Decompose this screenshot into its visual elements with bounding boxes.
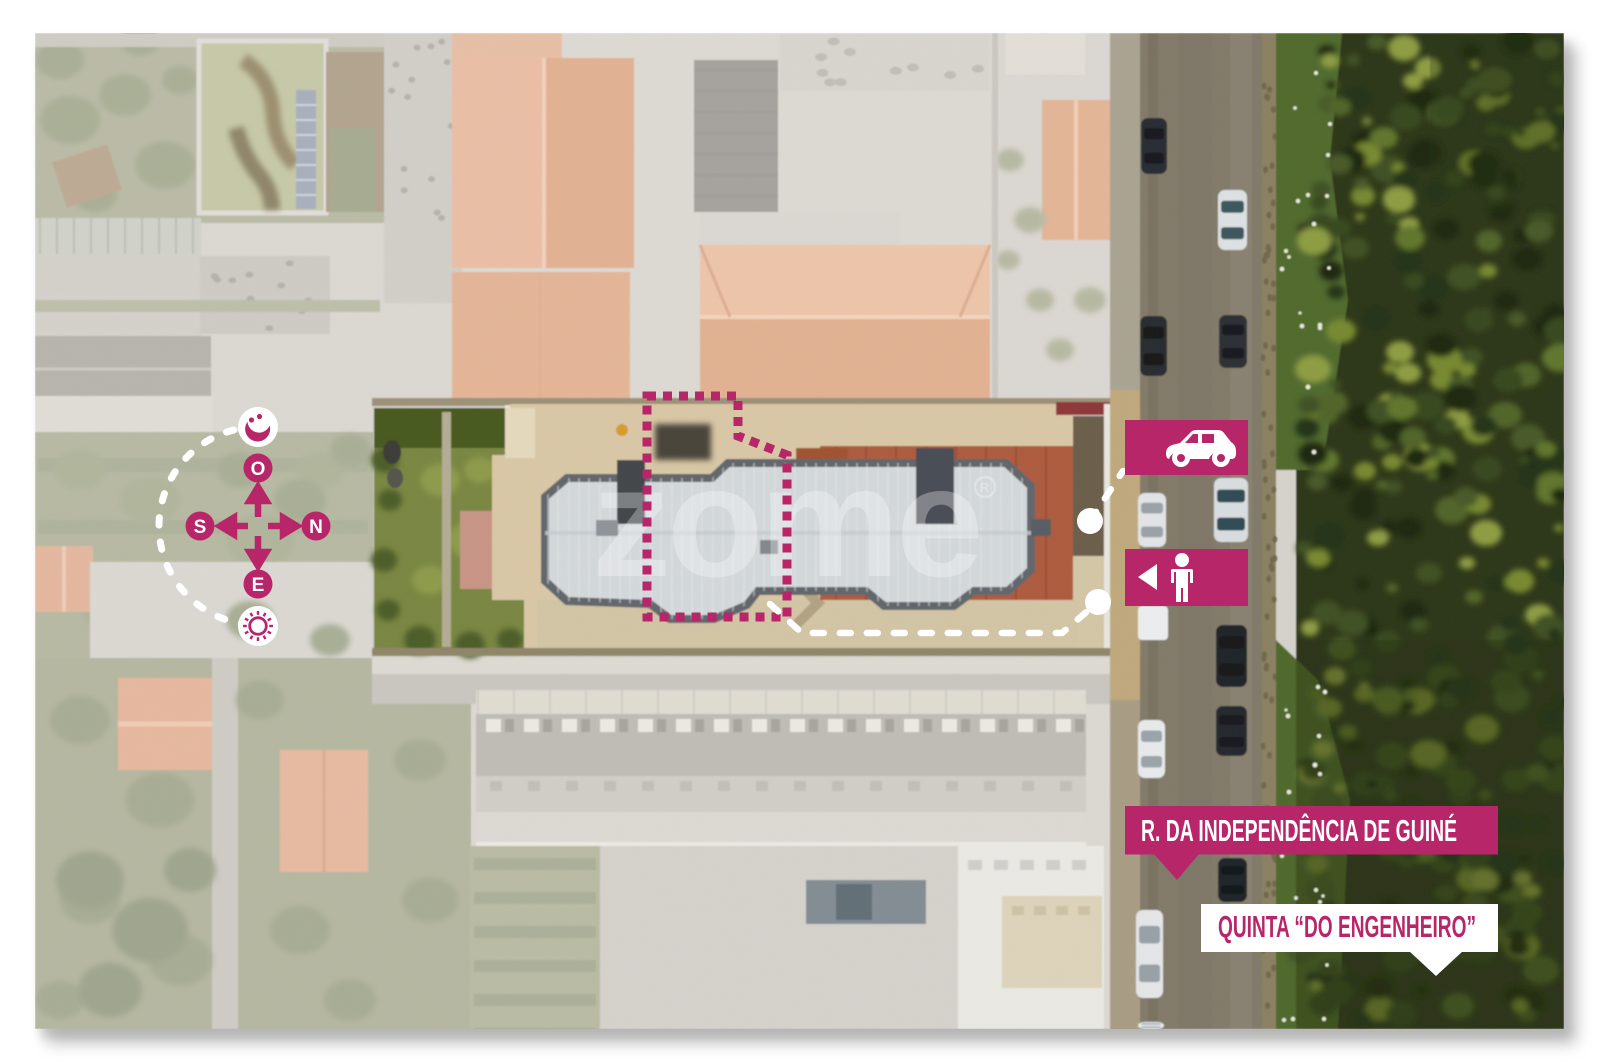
svg-text:R. DA INDEPENDÊNCIA DE GUINÉ: R. DA INDEPENDÊNCIA DE GUINÉ [1141, 812, 1457, 848]
svg-text:QUINTA “DO ENGENHEIRO”: QUINTA “DO ENGENHEIRO” [1218, 909, 1476, 944]
svg-text:S: S [194, 517, 207, 538]
svg-text:E: E [252, 575, 265, 596]
svg-text:N: N [309, 517, 323, 538]
svg-text:O: O [251, 459, 266, 480]
svg-text:R: R [980, 480, 990, 495]
